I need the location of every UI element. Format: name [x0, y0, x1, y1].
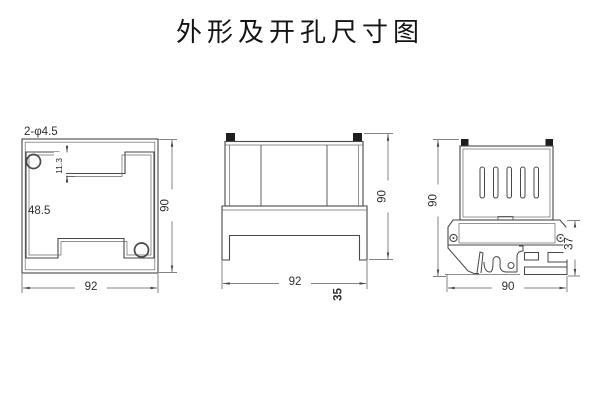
front-lower-bezel: [222, 206, 367, 260]
cutout-inner-width-dim-label: 48.5: [28, 205, 64, 218]
side-front-bezel-inner: [459, 224, 555, 244]
side-width-dim-label: 90: [492, 281, 524, 294]
cutout-height-dim-label: 90: [160, 190, 173, 222]
din-rail-clip: [445, 245, 523, 275]
dimension-drawing-page: 外形及开孔尺寸图: [0, 0, 600, 400]
cutout-holes-label: 2-φ4.5: [24, 126, 72, 139]
side-ear-right: [546, 139, 554, 146]
drawing-canvas: [0, 0, 600, 400]
side-view-drawing: [433, 139, 580, 292]
front-width-dim-label: 92: [279, 276, 311, 289]
front-view-drawing: [222, 133, 393, 289]
bezel-screw-left: [450, 234, 457, 241]
cutout-width-dim-label: 92: [75, 281, 107, 294]
ventilation-slots: [480, 167, 539, 198]
front-height-dim-label: 90: [377, 181, 390, 213]
side-ear-left: [461, 139, 469, 146]
side-rail-height-dim-label: 37: [564, 228, 577, 260]
front-upper-case-detail-lines: [225, 145, 363, 206]
front-depth-dim-label: 35: [333, 280, 346, 310]
mounting-ear-right: [353, 133, 362, 142]
mounting-ear-left: [226, 133, 235, 142]
front-upper-case: [225, 142, 363, 207]
side-dimension-lines: [433, 140, 580, 293]
cutout-step-dim-label: 11.3: [54, 152, 66, 180]
side-height-dim-label: 90: [428, 185, 441, 217]
din-rail-profile: [525, 253, 568, 275]
mounting-hole-top-left: [27, 155, 41, 169]
